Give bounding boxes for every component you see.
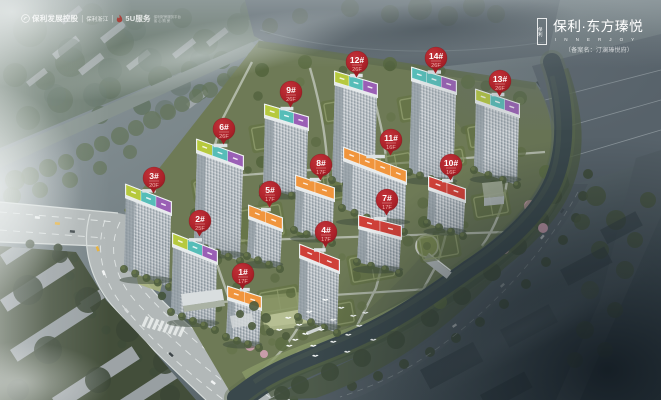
svg-text:17F: 17F bbox=[382, 205, 392, 211]
svg-text:2#: 2# bbox=[195, 214, 205, 224]
svg-text:4#: 4# bbox=[321, 225, 331, 235]
svg-text:14#: 14# bbox=[429, 51, 444, 61]
svg-text:16F: 16F bbox=[446, 170, 456, 176]
svg-text:6#: 6# bbox=[219, 122, 229, 132]
svg-text:26F: 26F bbox=[431, 63, 441, 69]
svg-text:25F: 25F bbox=[195, 226, 205, 232]
svg-text:17F: 17F bbox=[265, 197, 275, 203]
svg-text:26F: 26F bbox=[219, 134, 229, 140]
svg-text:17F: 17F bbox=[321, 237, 331, 243]
svg-text:16F: 16F bbox=[386, 145, 396, 151]
svg-text:5#: 5# bbox=[265, 185, 275, 195]
svg-text:26F: 26F bbox=[495, 86, 505, 92]
svg-text:9#: 9# bbox=[286, 85, 296, 95]
svg-text:7#: 7# bbox=[382, 193, 392, 203]
svg-text:10#: 10# bbox=[444, 158, 459, 168]
svg-text:1#: 1# bbox=[238, 267, 248, 277]
svg-text:8#: 8# bbox=[316, 158, 326, 168]
svg-text:11#: 11# bbox=[384, 133, 398, 143]
svg-text:26F: 26F bbox=[352, 67, 362, 73]
svg-text:17F: 17F bbox=[316, 170, 326, 176]
svg-text:12#: 12# bbox=[350, 55, 365, 65]
svg-text:3#: 3# bbox=[149, 171, 159, 181]
svg-text:17F: 17F bbox=[238, 279, 248, 285]
svg-text:13#: 13# bbox=[493, 74, 508, 84]
svg-text:20F: 20F bbox=[149, 183, 159, 189]
svg-text:26F: 26F bbox=[286, 97, 296, 103]
